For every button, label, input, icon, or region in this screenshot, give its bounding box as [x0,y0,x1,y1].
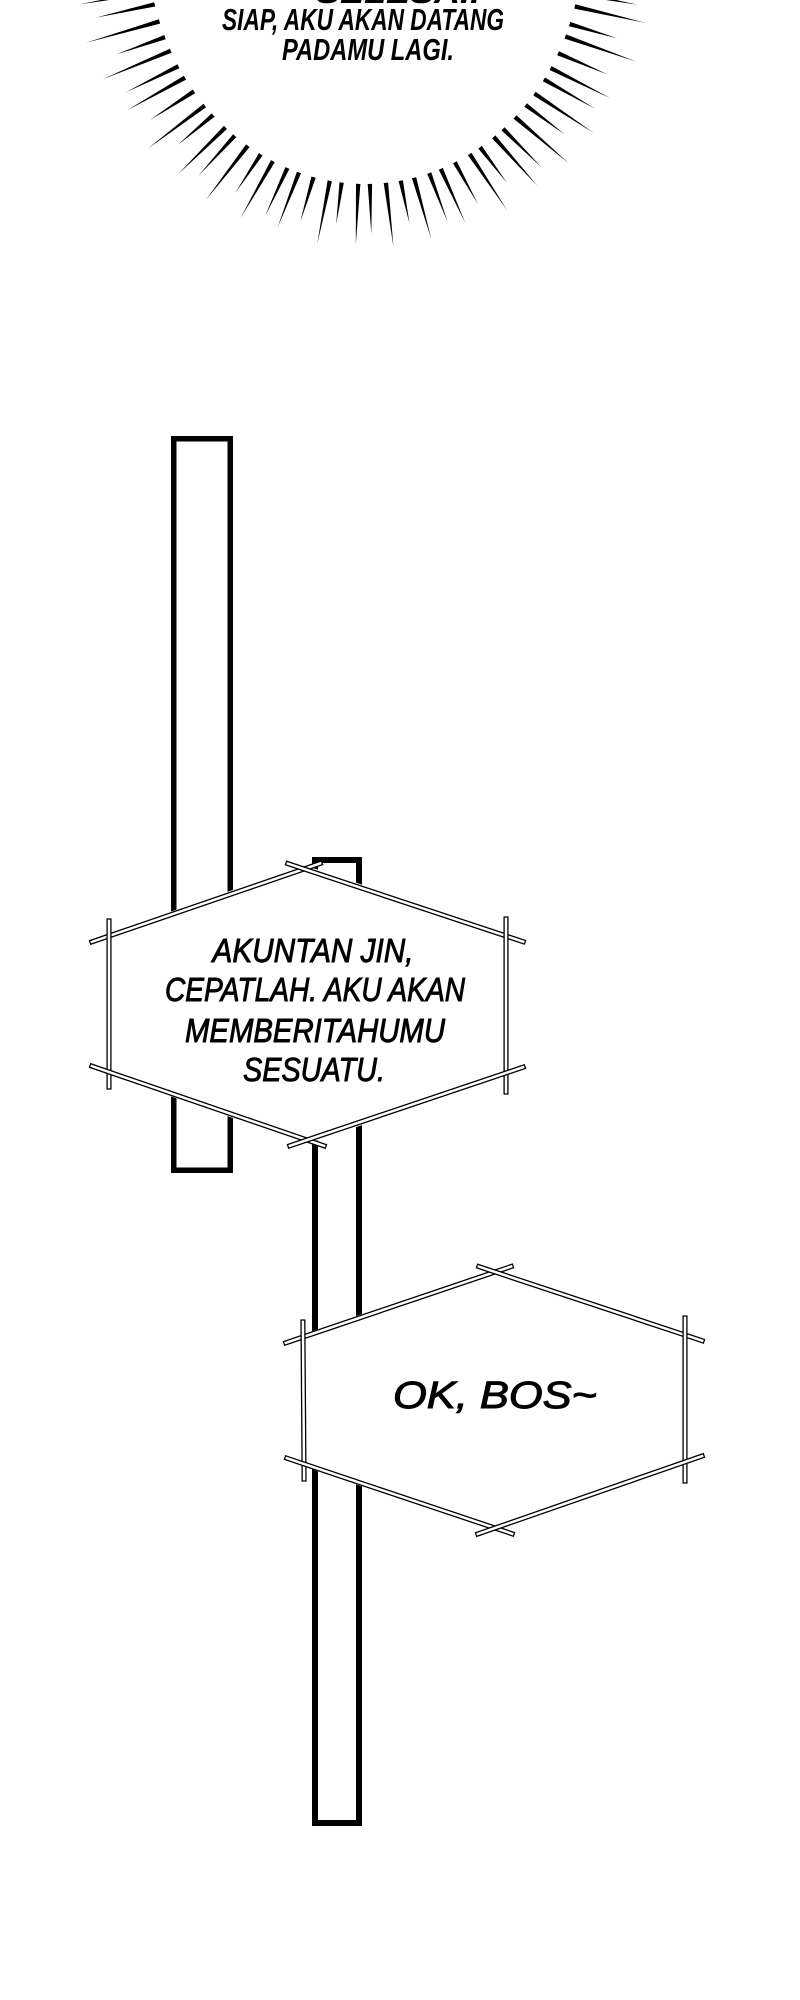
svg-text:AKUNTAN JIN,: AKUNTAN JIN, [211,932,414,969]
svg-text:SESUATU.: SESUATU. [243,1051,385,1088]
svg-text:PADAMU LAGI.: PADAMU LAGI. [282,32,454,67]
svg-text:OK, BOS~: OK, BOS~ [393,1375,597,1417]
svg-text:CEPATLAH. AKU AKAN: CEPATLAH. AKU AKAN [165,971,465,1008]
svg-text:MEMBERITAHUMU: MEMBERITAHUMU [185,1012,445,1049]
